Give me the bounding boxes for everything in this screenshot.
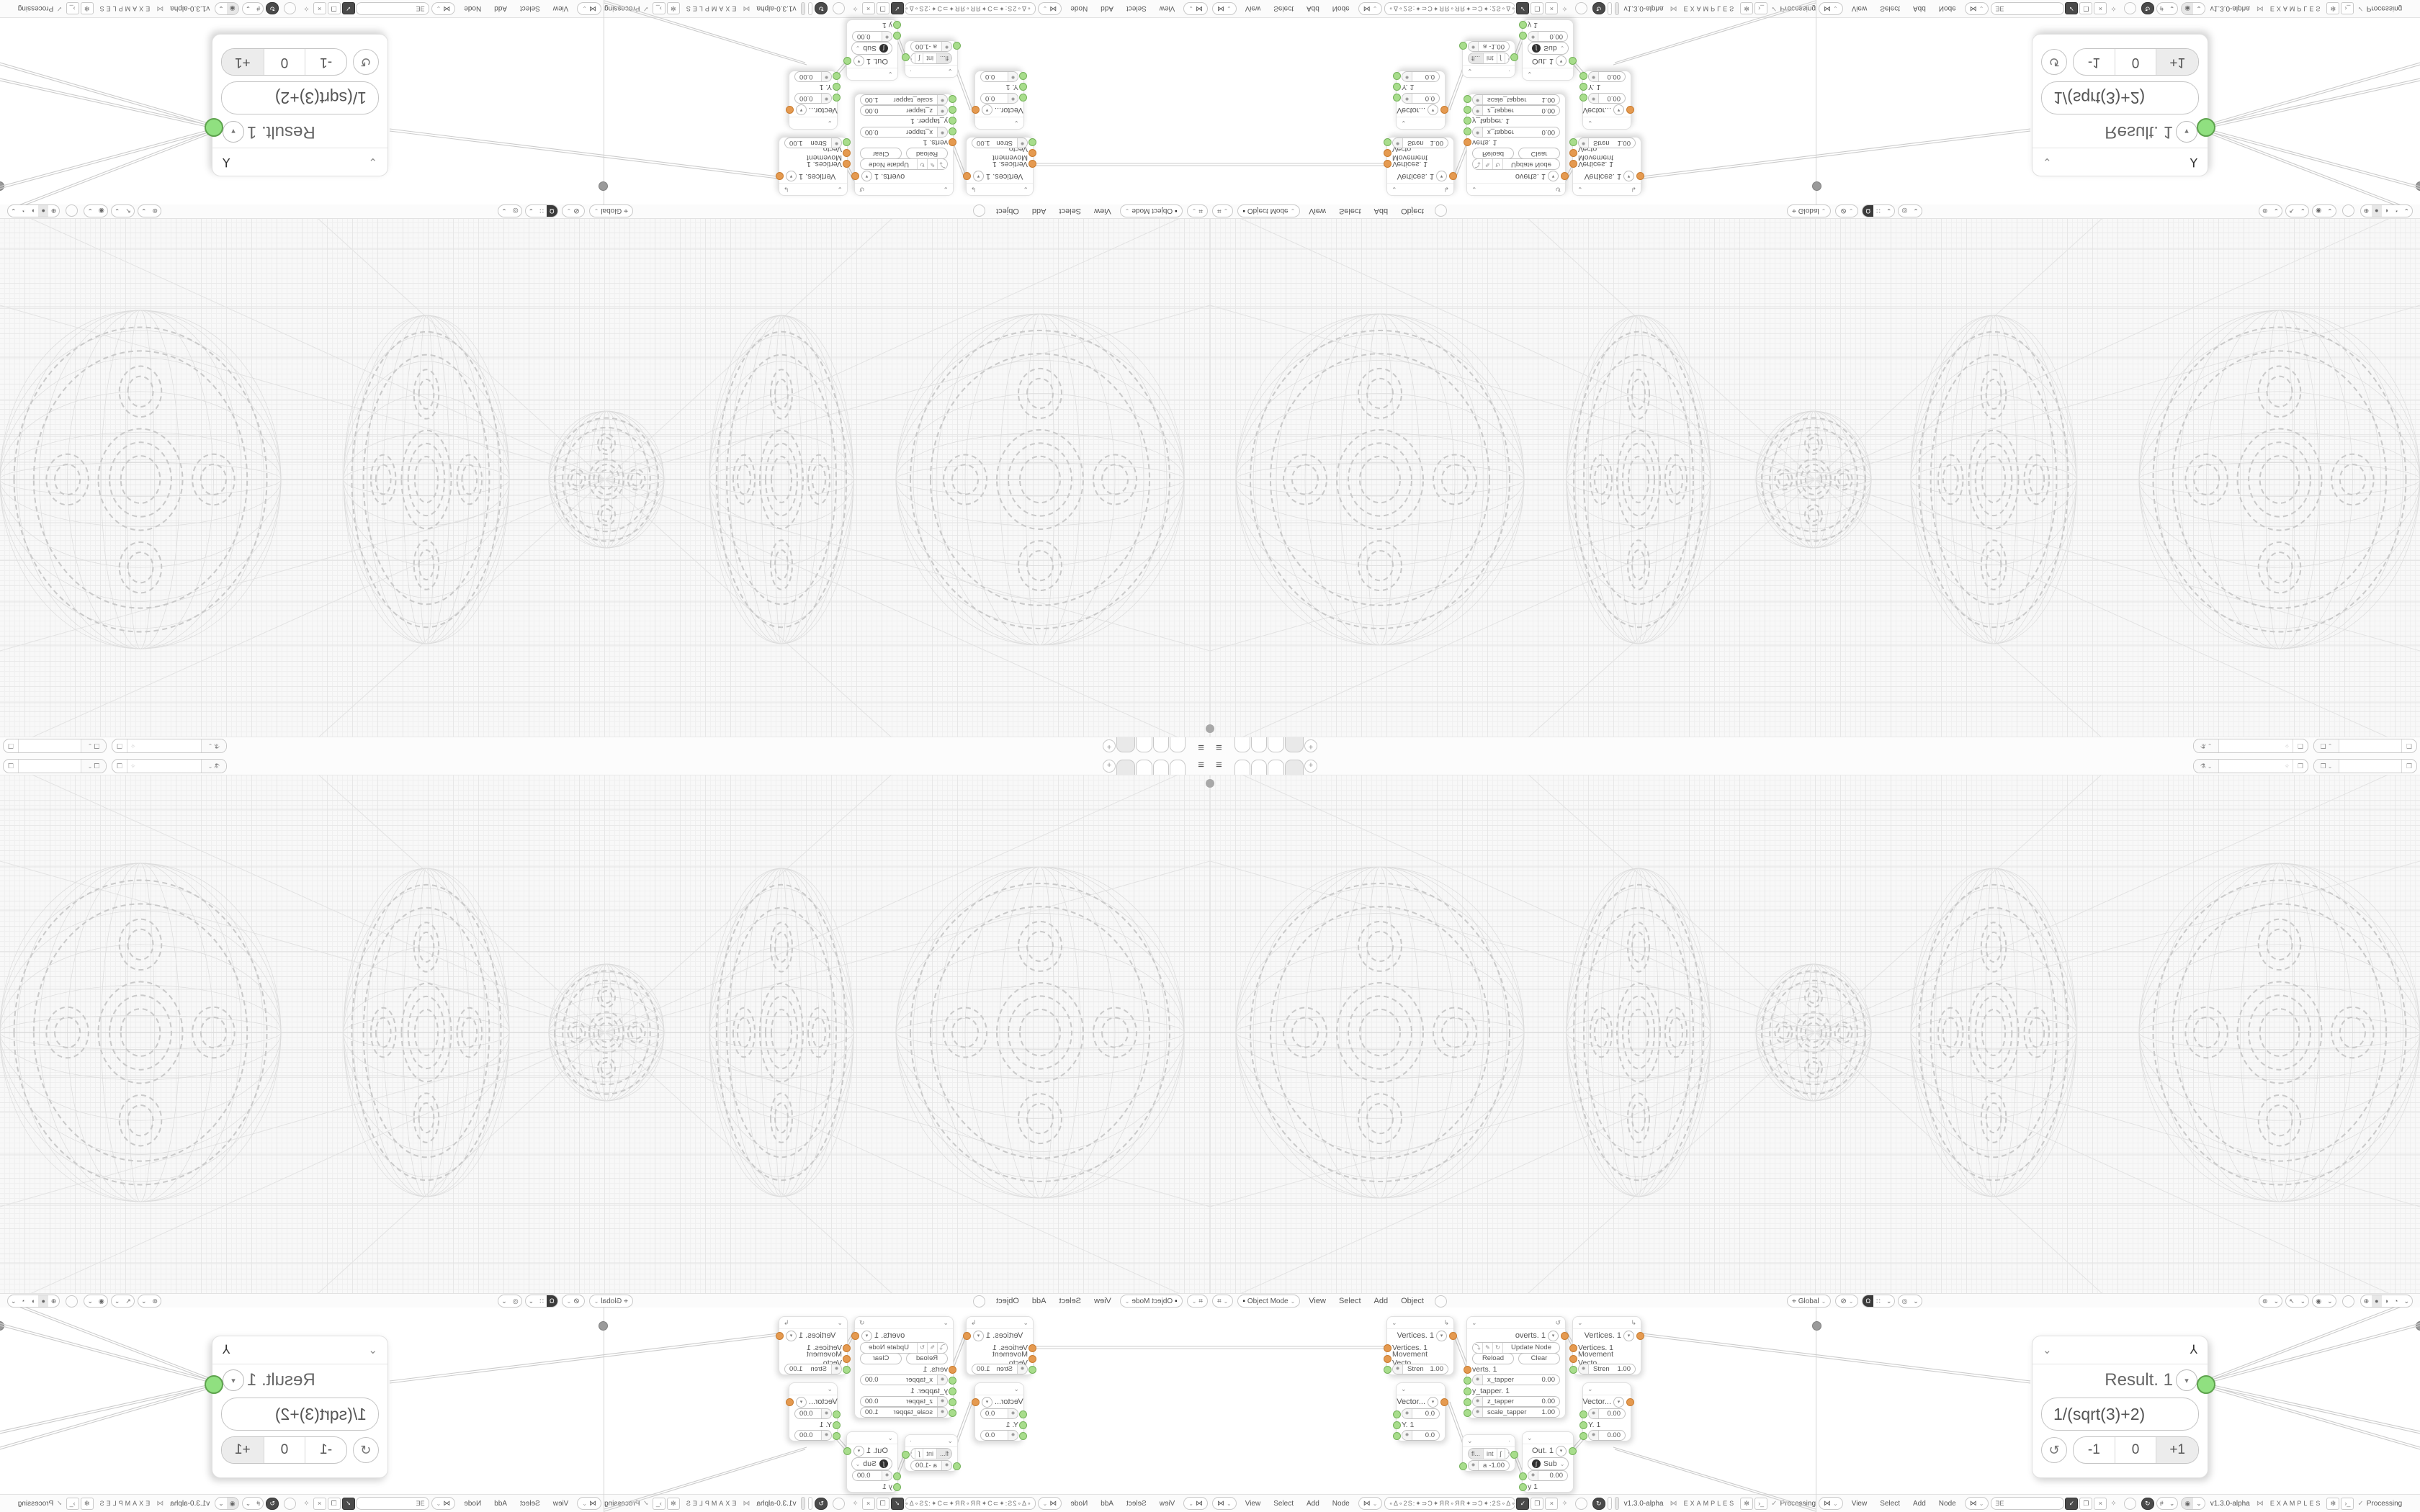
proportional-edit-controls[interactable]: ◎⌄ — [498, 1295, 521, 1308]
value-field[interactable]: ✹0.00 — [794, 1408, 832, 1419]
collapse-icon[interactable]: ⌄ — [1401, 120, 1407, 127]
dropdown-icon[interactable]: ▾ — [982, 105, 992, 116]
output-socket[interactable] — [963, 172, 971, 180]
workspace-tab-4-active[interactable] — [1285, 760, 1304, 775]
collapse-icon[interactable]: ⌄ — [1013, 1385, 1019, 1393]
output-socket[interactable] — [1569, 1447, 1577, 1455]
input-socket[interactable] — [1393, 1421, 1401, 1429]
value-field[interactable]: ✹0.00 — [794, 71, 832, 82]
menu-node[interactable]: Node — [1332, 1500, 1350, 1508]
input-socket[interactable] — [1464, 127, 1471, 135]
viewlayer-selector[interactable]: ❐⌄ ❐ — [2313, 759, 2417, 773]
value-field[interactable]: ✹Stren1.00 — [1392, 1364, 1448, 1374]
terminal-icon[interactable]: ›_ — [66, 1498, 79, 1510]
dropdown-icon[interactable]: ▾ — [853, 56, 864, 67]
copy-icon[interactable]: ❐ — [1531, 1498, 1543, 1510]
node-vector-2[interactable]: ⌄ Vector...▾ ✹0.00 Y. 1 ✹0.00 — [789, 1382, 838, 1441]
input-socket[interactable] — [1579, 94, 1587, 102]
node-vector-1[interactable]: ⌄ Vector...▾ ✹0.0 Y. 1 ✹0.0 — [974, 71, 1024, 130]
output-socket[interactable] — [1626, 106, 1634, 114]
input-socket[interactable] — [1393, 1410, 1401, 1418]
collapse-icon[interactable]: ⌄ — [1401, 1385, 1407, 1393]
input-socket[interactable] — [949, 1398, 956, 1406]
node-vector-1[interactable]: ⌄ Vector...▾ ✹0.0 Y. 1 ✹0.0 — [1396, 1382, 1446, 1441]
editor-type-button[interactable]: ⋈⌄ — [577, 1497, 601, 1510]
type-switch[interactable]: fl... int ∫ ▾ — [910, 1448, 952, 1459]
viewlayer-name-field[interactable] — [2339, 760, 2401, 773]
zero-button[interactable]: 0 — [2115, 1437, 2157, 1463]
add-workspace-button[interactable]: + — [1103, 760, 1116, 773]
editor-type-button[interactable]: ⋈⌄ — [1212, 2, 1237, 15]
filter-input[interactable]: ƎE — [356, 2, 429, 15]
output-socket[interactable] — [851, 1332, 859, 1340]
value-field[interactable]: ✹0.0 — [980, 1430, 1018, 1441]
input-socket[interactable] — [949, 95, 956, 103]
workspace-tab-2[interactable] — [1153, 760, 1169, 775]
value-field[interactable]: ✹0.00 — [794, 1430, 832, 1441]
scene-name-field[interactable]: ✧ — [127, 760, 201, 773]
value-field[interactable]: ✹x_tapper0.00 — [860, 1374, 948, 1385]
pin-icon[interactable]: ✧ — [2110, 1500, 2116, 1508]
value-field[interactable]: ✹scale_tapper1.00 — [1472, 94, 1560, 105]
close-icon[interactable]: × — [2094, 3, 2107, 15]
dropdown-icon[interactable]: ▾ — [223, 1369, 244, 1391]
close-icon[interactable]: × — [862, 3, 875, 15]
input-socket[interactable] — [833, 1432, 841, 1440]
reload-button[interactable]: Reload — [1472, 1353, 1514, 1364]
dropdown-icon[interactable]: ▾ — [2176, 121, 2197, 143]
reload-button[interactable]: Reload — [906, 1353, 948, 1364]
value-field[interactable]: ✹Stren1.00 — [1578, 1364, 1636, 1374]
menu-node[interactable]: Node — [464, 1500, 481, 1508]
orientation-selector[interactable]: ⌖Global⌄ — [1787, 1295, 1831, 1308]
pivot-selector[interactable]: ⊘⌄ — [562, 1295, 585, 1308]
input-socket[interactable] — [1579, 1432, 1587, 1440]
hamburger-icon[interactable]: ≡ — [1198, 742, 1204, 752]
output-socket[interactable] — [1440, 1398, 1448, 1406]
output-socket[interactable] — [205, 1375, 223, 1394]
menu-select[interactable]: Select — [1126, 1500, 1147, 1508]
input-socket[interactable] — [1569, 149, 1577, 157]
zero-button[interactable]: 0 — [2115, 49, 2157, 75]
node-out[interactable]: ⌄ Out. 1▾ ∫ Sub ⌄ ✹0.00 y 1 — [846, 19, 898, 81]
menu-view[interactable]: View — [1245, 1500, 1261, 1508]
grid-snap-button[interactable]: #⌄ — [2156, 2, 2179, 15]
input-socket[interactable] — [949, 1366, 956, 1374]
viewport-3d[interactable] — [1210, 219, 2420, 737]
output-socket[interactable] — [843, 57, 851, 65]
input-socket[interactable] — [1028, 1366, 1036, 1374]
input-socket[interactable] — [949, 106, 956, 114]
viewlayer-selector[interactable]: ❐⌄ ❐ — [3, 739, 107, 753]
operation-selector[interactable]: ∫ Sub ⌄ — [851, 1457, 892, 1470]
editor-type-button[interactable]: ⋈⌄ — [577, 2, 601, 15]
input-socket[interactable] — [1384, 1344, 1391, 1352]
clear-button[interactable]: Clear — [860, 1353, 902, 1364]
xray-toggle[interactable] — [66, 205, 78, 217]
menu-object[interactable]: Object — [1401, 1297, 1424, 1305]
workspace-tab-1[interactable] — [1234, 737, 1250, 752]
value-field[interactable]: ✹0.0 — [1402, 71, 1440, 82]
collapse-icon[interactable]: ⌄ — [827, 1385, 833, 1393]
collapse-icon[interactable]: ⌄ — [1577, 1319, 1583, 1327]
value-field[interactable]: ✹0.00 — [1588, 1408, 1626, 1419]
collapse-icon[interactable]: ⌄ — [2043, 1344, 2052, 1356]
viewport-3d[interactable] — [0, 219, 1210, 737]
pin-icon[interactable]: ✧ — [1561, 5, 1567, 13]
flask-icon[interactable]: ✻ — [667, 1498, 680, 1510]
dropdown-icon[interactable]: ▾ — [1548, 1331, 1559, 1341]
menu-select[interactable]: Select — [1273, 1500, 1294, 1508]
copy-icon[interactable]: ❐ — [328, 3, 341, 15]
input-socket[interactable] — [833, 1421, 841, 1429]
dropdown-icon[interactable]: ▾ — [1436, 1331, 1447, 1341]
xray-toggle[interactable] — [2342, 205, 2354, 217]
collapse-icon[interactable]: ⌄ — [887, 1434, 893, 1442]
workspace-tab-3[interactable] — [1136, 737, 1152, 752]
gizmo-toggle[interactable]: ↖⌄ — [2285, 204, 2309, 217]
dropdown-icon[interactable]: ▾ — [853, 1446, 864, 1457]
collapse-icon[interactable]: ⌄ — [1527, 1434, 1533, 1442]
input-socket[interactable] — [1019, 83, 1027, 91]
dropdown-icon[interactable]: ▾ — [796, 1397, 807, 1408]
workspace-tab-4-active[interactable] — [1116, 737, 1135, 752]
filter-input[interactable]: ƎE — [1991, 1497, 2064, 1510]
output-socket[interactable] — [1636, 1332, 1644, 1340]
update-node-button[interactable]: ⤵ ✎ ↻ Update Node — [860, 1342, 948, 1354]
output-socket[interactable] — [786, 1398, 794, 1406]
workspace-tab-4-active[interactable] — [1116, 760, 1135, 775]
node-literal[interactable]: ⌄· fl... int ∫ ▾ ✹a-1.00 — [1462, 1434, 1515, 1472]
flask-icon[interactable]: ✻ — [2326, 3, 2339, 15]
value-field[interactable]: ✹z_tapper0.00 — [1472, 1396, 1560, 1407]
pivot-selector[interactable]: ⊘⌄ — [1835, 1295, 1858, 1308]
proportional-edit-controls[interactable]: ◎⌄ — [498, 204, 521, 217]
input-socket[interactable] — [893, 32, 901, 40]
examples-label[interactable]: EXAMPLES — [684, 1500, 737, 1507]
grid-snap-button[interactable]: #⌄ — [809, 1497, 813, 1510]
operation-selector[interactable]: ∫ Sub ⌄ — [1528, 1457, 1569, 1470]
node-out[interactable]: ⌄ Out. 1▾ ∫ Sub ⌄ ✹0.00 y 1 — [1522, 1431, 1574, 1493]
collapse-icon[interactable]: ⌄ — [1467, 68, 1473, 76]
menu-add[interactable]: Add — [1307, 1500, 1319, 1508]
pin-icon[interactable]: ✧ — [130, 742, 136, 750]
refresh-icon[interactable]: ↻ — [266, 1498, 279, 1510]
zero-button[interactable]: 0 — [264, 49, 305, 75]
terminal-icon[interactable]: ›_ — [66, 3, 79, 15]
node-result[interactable]: ⌄⅄ Result. 1▾ 1/(sqrt(3)+2) ↺ -1 0 +1 — [2032, 34, 2208, 176]
workspace-tab-1[interactable] — [1170, 760, 1186, 775]
workspace-tab-3[interactable] — [1268, 760, 1284, 775]
menu-node[interactable]: Node — [1332, 5, 1350, 13]
examples-label[interactable]: EXAMPLES — [2270, 5, 2323, 12]
collapse-icon[interactable]: ⌄ — [1391, 1319, 1397, 1327]
menu-add[interactable]: Add — [1374, 207, 1389, 215]
output-socket[interactable] — [851, 172, 859, 180]
shading-mode-switch[interactable]: ⊕ ● ◑ ◔ ⌄ — [2360, 204, 2413, 217]
input-socket[interactable] — [1519, 1472, 1527, 1480]
collapse-icon[interactable]: ⌄ — [947, 1437, 953, 1445]
node-out[interactable]: ⌄ Out. 1▾ ∫ Sub ⌄ ✹0.00 y 1 — [846, 1431, 898, 1493]
input-socket[interactable] — [949, 1377, 956, 1385]
scene-selector[interactable]: ⚗⌄ ✧ ❐ — [2193, 739, 2308, 753]
pivot-selector[interactable]: ⊘⌄ — [562, 204, 585, 217]
output-socket[interactable] — [843, 1447, 851, 1455]
editor-type-button[interactable]: ⋈⌄ — [1212, 1497, 1237, 1510]
copy-icon[interactable]: ❐ — [328, 1498, 341, 1510]
copy-icon[interactable]: ❐ — [877, 1498, 889, 1510]
input-socket[interactable] — [1569, 1366, 1577, 1374]
tool-circle-button[interactable] — [2124, 3, 2136, 15]
menu-add[interactable]: Add — [1032, 207, 1047, 215]
node-literal[interactable]: ⌄· fl... int ∫ ▾ ✹a-1.00 — [905, 1434, 958, 1472]
shading-mode-switch[interactable]: ⊕ ● ◑ ◔ ⌄ — [7, 204, 60, 217]
flask-icon[interactable]: ✻ — [667, 3, 680, 15]
value-field[interactable]: ✹z_tapper0.00 — [1472, 105, 1560, 116]
scene-copy-icon[interactable]: ❐ — [2293, 739, 2308, 752]
dropdown-icon[interactable]: ▾ — [1556, 1446, 1567, 1457]
menu-select[interactable]: Select — [1880, 5, 1900, 13]
menu-view[interactable]: View — [553, 5, 569, 13]
menu-select[interactable]: Select — [1339, 1297, 1361, 1305]
menu-node[interactable]: Node — [1939, 5, 1956, 13]
node-result[interactable]: ⌄⅄ Result. 1▾ 1/(sqrt(3)+2) ↺ -1 0 +1 — [2032, 1336, 2208, 1478]
expression-field[interactable]: 1/(sqrt(3)+2) — [221, 81, 379, 114]
grid-snap-button[interactable]: #⌄ — [1608, 2, 1612, 15]
scene-name-field[interactable]: ✧ — [2219, 739, 2293, 752]
input-socket[interactable] — [1569, 138, 1577, 146]
input-socket[interactable] — [1028, 160, 1036, 168]
flask-icon[interactable]: ✻ — [2326, 1498, 2339, 1510]
value-field[interactable]: ✹0.00 — [794, 93, 832, 104]
overlays-toggle[interactable]: ◉⌄ — [2312, 204, 2336, 217]
menu-view[interactable]: View — [1852, 5, 1868, 13]
menu-select[interactable]: Select — [520, 5, 540, 13]
node-vertices-2[interactable]: ⌄↳ Vertices. 1▾ Vertices. 1 Movement Vec… — [1572, 137, 1641, 196]
input-socket[interactable] — [1028, 1344, 1036, 1352]
zero-button[interactable]: 0 — [264, 1437, 305, 1463]
input-socket[interactable] — [1393, 72, 1401, 80]
node-overts[interactable]: ⌄↺ overts. 1▾ ⤵ ✎ ↻ Update Node Reload C… — [1466, 1316, 1566, 1418]
filter-type-button[interactable]: ⋈⌄ — [431, 2, 456, 15]
node-result[interactable]: ⌄⅄ Result. 1▾ 1/(sqrt(3)+2) ↺ -1 0 +1 — [212, 34, 388, 176]
scene-selector[interactable]: ⚗⌄ ✧ ❐ — [2193, 759, 2308, 773]
collapse-icon[interactable]: ⌄ — [837, 186, 843, 194]
dropdown-icon[interactable]: ▾ — [2176, 1369, 2197, 1391]
viewlayer-copy-icon[interactable]: ❐ — [4, 760, 19, 773]
update-node-button[interactable]: ⤵ ✎ ↻ Update Node — [860, 159, 948, 171]
proportional-edit-controls[interactable]: ◎⌄ — [1898, 204, 1922, 217]
input-socket[interactable] — [833, 83, 841, 91]
value-field[interactable]: ✹a-1.00 — [910, 41, 952, 52]
collapse-icon[interactable]: ⌄ — [1391, 186, 1397, 194]
display-mode-button[interactable]: ◉⌄ — [801, 2, 805, 15]
examples-label[interactable]: EXAMPLES — [1684, 5, 1736, 12]
collapse-icon[interactable]: ⌄ — [2043, 156, 2052, 168]
dropdown-icon[interactable]: ▾ — [1623, 171, 1634, 182]
input-socket[interactable] — [1579, 72, 1587, 80]
menu-object[interactable]: Object — [996, 1297, 1019, 1305]
loop-button[interactable]: ↺ — [2041, 49, 2067, 75]
value-field[interactable]: ✹Stren1.00 — [972, 138, 1028, 148]
value-field[interactable]: ✹0.0 — [1402, 1430, 1440, 1441]
viewlayer-name-field[interactable] — [2339, 739, 2401, 752]
menu-node[interactable]: Node — [1070, 5, 1088, 13]
increment-button[interactable]: +1 — [222, 1437, 264, 1463]
pin-icon[interactable]: ✧ — [2284, 742, 2290, 750]
input-socket[interactable] — [1464, 95, 1471, 103]
filter-type-button[interactable]: ⋈⌄ — [1965, 1497, 1989, 1510]
workspace-tab-2[interactable] — [1153, 737, 1169, 752]
output-socket[interactable] — [1569, 57, 1577, 65]
flask-icon[interactable]: ✻ — [81, 3, 94, 15]
input-socket[interactable] — [1464, 1377, 1471, 1385]
tool-circle-button[interactable] — [284, 3, 296, 15]
value-field[interactable]: ✹a-1.00 — [1468, 41, 1510, 52]
active-tool-button[interactable] — [973, 205, 985, 217]
scene-copy-icon[interactable]: ❐ — [112, 760, 127, 773]
viewlayer-copy-icon[interactable]: ❐ — [2401, 739, 2416, 752]
area-split-widget-right[interactable] — [2416, 1321, 2420, 1331]
viewlayer-copy-icon[interactable]: ❐ — [4, 739, 19, 752]
collapse-icon[interactable]: ⌄ — [943, 186, 949, 194]
menu-add[interactable]: Add — [1374, 1297, 1389, 1305]
value-field[interactable]: ✹scale_tapper1.00 — [860, 1407, 948, 1418]
input-socket[interactable] — [893, 1472, 901, 1480]
node-vertices-1[interactable]: ⌄↳ Vertices. 1▾ Vertices. 1 Movement Vec… — [966, 1316, 1034, 1375]
expression-field[interactable]: 1/(sqrt(3)+2) — [221, 1398, 379, 1431]
value-field[interactable]: ✹a-1.00 — [1468, 1460, 1510, 1471]
menu-add[interactable]: Add — [1913, 1500, 1926, 1508]
dropdown-icon[interactable]: ▾ — [1428, 105, 1438, 116]
gizmo-toggle[interactable]: ↖⌄ — [111, 1295, 135, 1308]
menu-view[interactable]: View — [1852, 1500, 1868, 1508]
workspace-tab-2[interactable] — [1251, 737, 1267, 752]
expression-field[interactable]: 1/(sqrt(3)+2) — [2041, 1398, 2199, 1431]
editor-type-button[interactable]: ⋈⌄ — [1183, 1497, 1208, 1510]
value-field[interactable]: ✹0.00 — [1528, 31, 1568, 42]
menu-select[interactable]: Select — [1059, 1297, 1081, 1305]
menu-view[interactable]: View — [1245, 5, 1261, 13]
dropdown-icon[interactable]: ▾ — [796, 105, 807, 116]
display-mode-button[interactable]: ◉⌄ — [801, 1497, 805, 1510]
dropdown-icon[interactable]: ▾ — [861, 171, 872, 182]
grid-snap-button[interactable]: #⌄ — [1608, 1497, 1612, 1510]
orientation-selector[interactable]: ⌖Global⌄ — [1787, 204, 1831, 217]
output-socket[interactable] — [902, 53, 910, 61]
filter-type-button[interactable]: ⋈⌄ — [1358, 2, 1383, 15]
decrement-button[interactable]: -1 — [2074, 49, 2115, 75]
area-split-widget-right[interactable] — [0, 181, 4, 191]
editor-type-button[interactable]: ⋈⌄ — [1183, 2, 1208, 15]
collapse-icon[interactable]: ⌄ — [887, 71, 893, 78]
input-socket[interactable] — [1464, 138, 1471, 146]
menu-add[interactable]: Add — [1307, 5, 1319, 13]
gizmo-toggle[interactable]: ↖⌄ — [2285, 1295, 2309, 1308]
collapse-icon[interactable]: ⌄ — [368, 156, 377, 168]
scene-name-field[interactable]: ✧ — [2219, 760, 2293, 773]
input-socket[interactable] — [1464, 1398, 1471, 1406]
active-tool-button[interactable] — [1435, 205, 1447, 217]
filter-type-button[interactable]: ⋈⌄ — [431, 1497, 456, 1510]
menu-add[interactable]: Add — [1032, 1297, 1047, 1305]
copy-icon[interactable]: ❐ — [877, 3, 889, 15]
dropdown-icon[interactable]: ▾ — [982, 1397, 992, 1408]
display-mode-button[interactable]: ◉⌄ — [1615, 2, 1619, 15]
menu-view[interactable]: View — [1309, 207, 1326, 215]
viewport-3d[interactable] — [0, 775, 1210, 1293]
dropdown-icon[interactable]: ▾ — [1436, 171, 1447, 182]
collapse-icon[interactable]: ⌄ — [1577, 186, 1583, 194]
display-mode-button[interactable]: ◉⌄ — [2181, 2, 2205, 15]
node-overts[interactable]: ⌄↺ overts. 1▾ ⤵ ✎ ↻ Update Node Reload C… — [1466, 94, 1566, 196]
input-socket[interactable] — [1384, 1355, 1391, 1363]
output-socket[interactable] — [1636, 172, 1644, 180]
input-socket[interactable] — [843, 138, 851, 146]
node-literal[interactable]: ⌄· fl... int ∫ ▾ ✹a-1.00 — [905, 40, 958, 78]
collapse-icon[interactable]: ⌄ — [1023, 1319, 1028, 1327]
node-vector-2[interactable]: ⌄ Vector...▾ ✹0.00 Y. 1 ✹0.00 — [1582, 71, 1631, 130]
input-socket[interactable] — [1393, 94, 1401, 102]
value-field[interactable]: ✹z_tapper0.00 — [860, 1396, 948, 1407]
menu-select[interactable]: Select — [1273, 5, 1294, 13]
input-socket[interactable] — [1569, 1344, 1577, 1352]
area-split-widget-right[interactable] — [0, 1321, 4, 1331]
node-vector-1[interactable]: ⌄ Vector...▾ ✹0.0 Y. 1 ✹0.0 — [1396, 71, 1446, 130]
collapse-icon[interactable]: ⌄ — [1013, 120, 1019, 127]
scene-selector[interactable]: ⚗⌄ ✧ ❐ — [112, 759, 227, 773]
input-socket[interactable] — [843, 1355, 851, 1363]
value-field[interactable]: ✹0.0 — [980, 93, 1018, 104]
refresh-icon[interactable]: ↻ — [1592, 3, 1605, 15]
input-socket[interactable] — [949, 1387, 956, 1395]
clear-button[interactable]: Clear — [1518, 1353, 1560, 1364]
tool-circle-button[interactable] — [1575, 3, 1587, 15]
loop-button[interactable]: ↺ — [353, 49, 379, 75]
input-socket[interactable] — [1464, 106, 1471, 114]
object-visibility-button[interactable]: ⊚⌄ — [138, 204, 161, 217]
node-result[interactable]: ⌄⅄ Result. 1▾ 1/(sqrt(3)+2) ↺ -1 0 +1 — [212, 1336, 388, 1478]
workspace-tab-2[interactable] — [1251, 760, 1267, 775]
close-icon[interactable]: × — [1545, 1498, 1558, 1510]
editor-type-button[interactable]: ⌗⌄ — [1212, 204, 1233, 217]
output-socket[interactable] — [1510, 1451, 1518, 1459]
menu-view[interactable]: View — [1094, 207, 1111, 215]
area-split-widget-right[interactable] — [2416, 181, 2420, 191]
input-socket[interactable] — [1384, 160, 1391, 168]
reload-button[interactable]: Reload — [906, 148, 948, 160]
area-divider[interactable] — [604, 1308, 604, 1512]
terminal-icon[interactable]: ›_ — [653, 1498, 665, 1510]
grid-snap-button[interactable]: #⌄ — [242, 1497, 264, 1510]
type-switch[interactable]: fl... int ∫ ▾ — [1468, 53, 1510, 64]
type-switch[interactable]: fl... int ∫ ▾ — [910, 53, 952, 64]
terminal-icon[interactable]: ›_ — [1754, 1498, 1767, 1510]
hamburger-icon[interactable]: ≡ — [1198, 760, 1204, 770]
menu-view[interactable]: View — [1309, 1297, 1326, 1305]
collapse-icon[interactable]: ⌄ — [1471, 1319, 1477, 1327]
value-field[interactable]: ✹z_tapper0.00 — [860, 105, 948, 116]
value-field[interactable]: ✹x_tapper0.00 — [860, 127, 948, 138]
tool-circle-button[interactable] — [284, 1498, 296, 1510]
shield-check-icon[interactable]: ✓ — [342, 3, 355, 15]
value-field[interactable]: ✹0.0 — [980, 1408, 1018, 1419]
node-vertices-1[interactable]: ⌄↳ Vertices. 1▾ Vertices. 1 Movement Vec… — [966, 137, 1034, 196]
terminal-icon[interactable]: ›_ — [653, 3, 665, 15]
xray-toggle[interactable] — [2342, 1295, 2354, 1308]
node-vertices-1[interactable]: ⌄↳ Vertices. 1▾ Vertices. 1 Movement Vec… — [1386, 1316, 1454, 1375]
input-socket[interactable] — [893, 1483, 901, 1491]
